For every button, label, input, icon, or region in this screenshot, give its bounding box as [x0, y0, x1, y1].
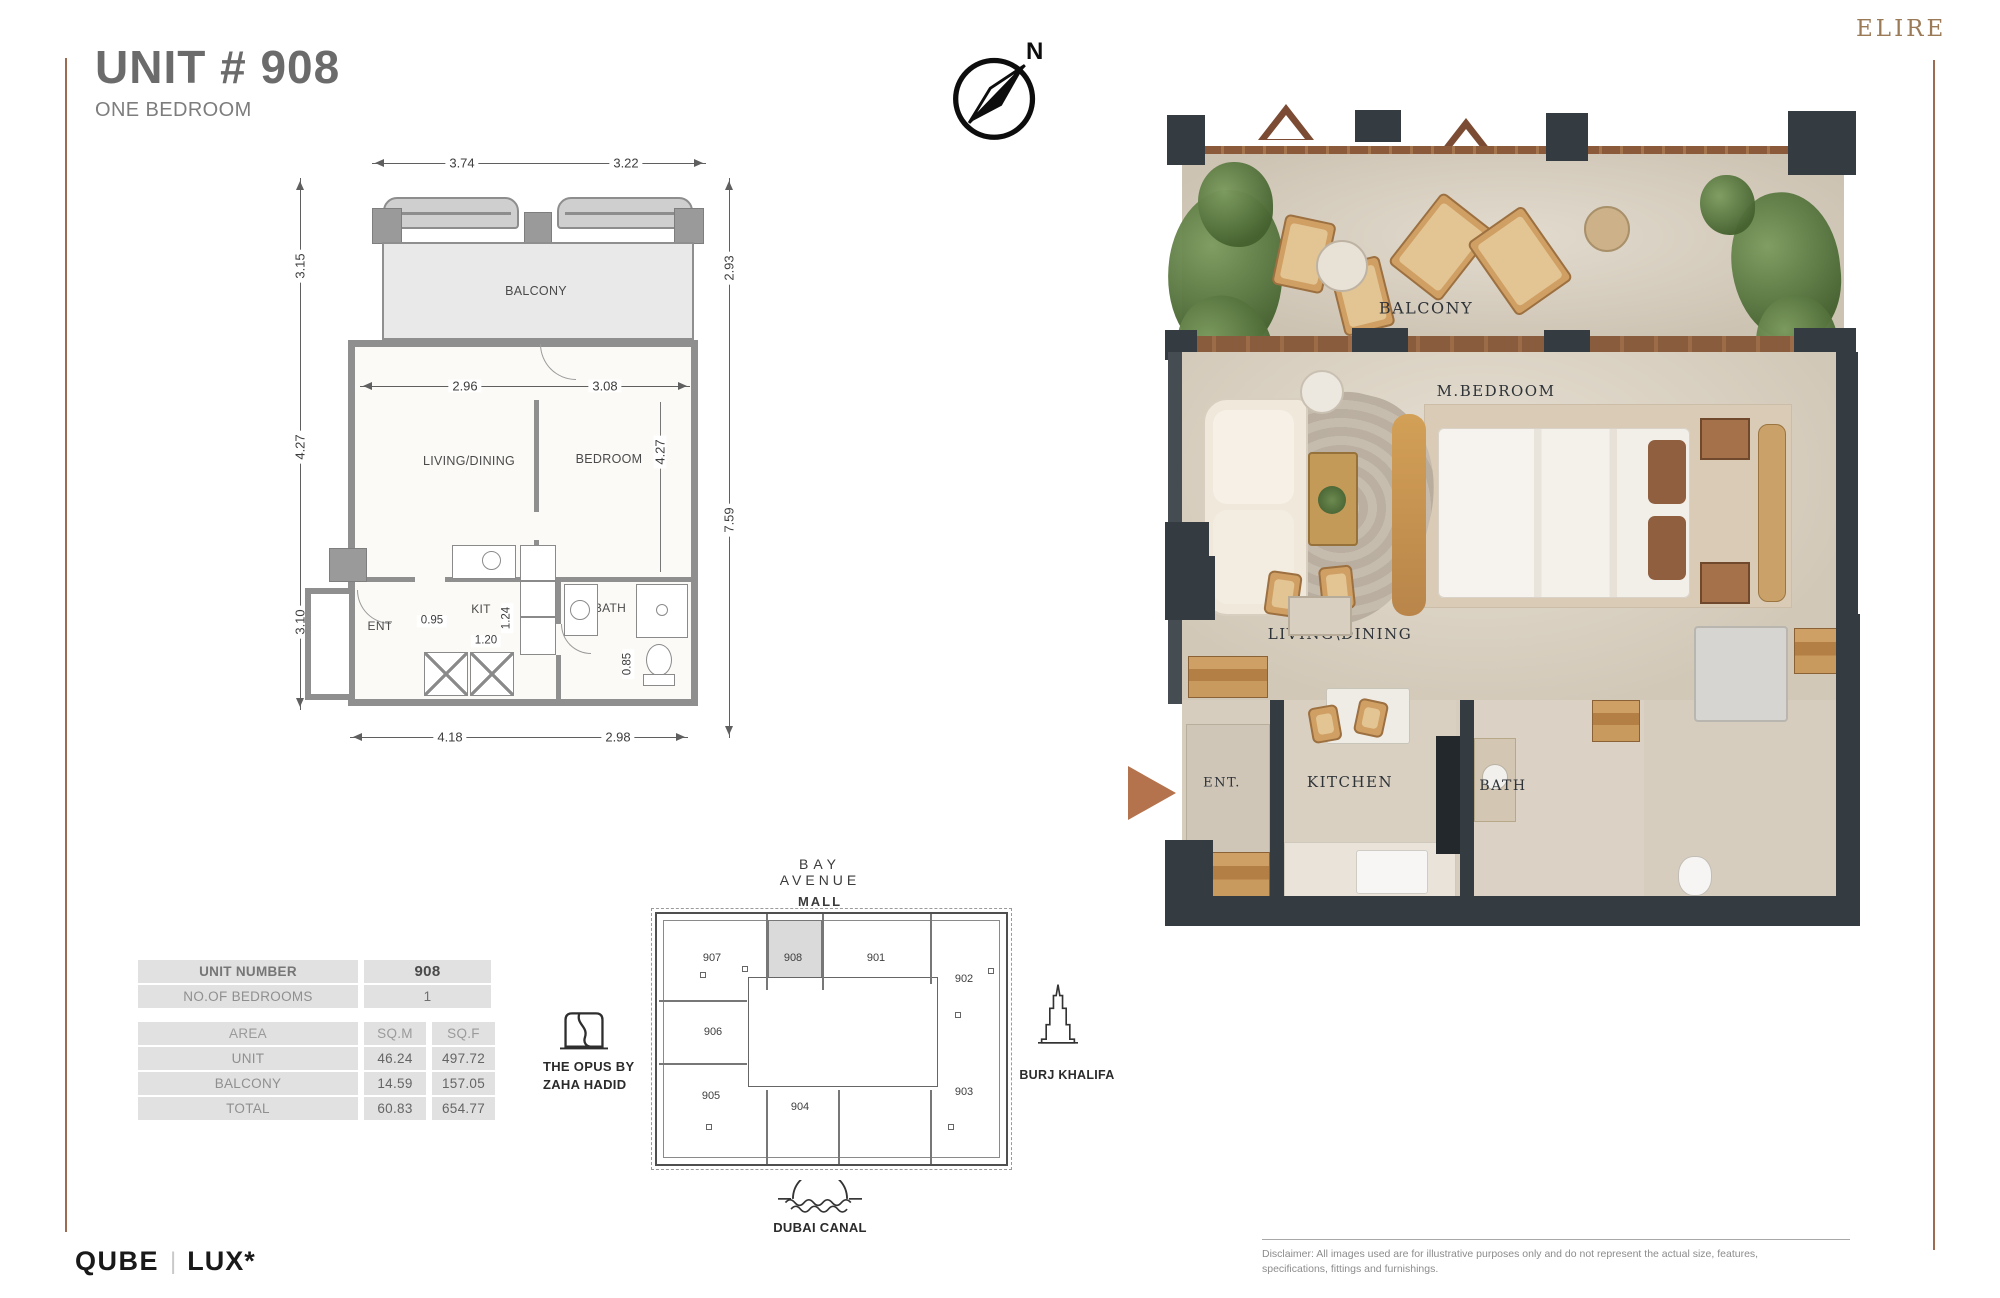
disclaimer-line1: Disclaimer: All images used are for illu…: [1262, 1247, 1850, 1262]
qube-logo: QUBE: [75, 1246, 159, 1277]
disclaimer-text: Disclaimer: All images used are for illu…: [1262, 1247, 1850, 1277]
disclaimer-rule: [1262, 1239, 1850, 1240]
footer: QUBE | LUX* Disclaimer: All images used …: [0, 0, 2000, 1298]
disclaimer-line2: specifications, fittings and furnishings…: [1262, 1262, 1850, 1277]
brochure-page: UNIT # 908 ONE BEDROOM ELIRE N 3.74 3.22…: [0, 0, 2000, 1298]
footer-logos: QUBE | LUX*: [75, 1246, 256, 1277]
lux-logo: LUX*: [187, 1246, 256, 1277]
logo-divider: |: [170, 1248, 176, 1276]
